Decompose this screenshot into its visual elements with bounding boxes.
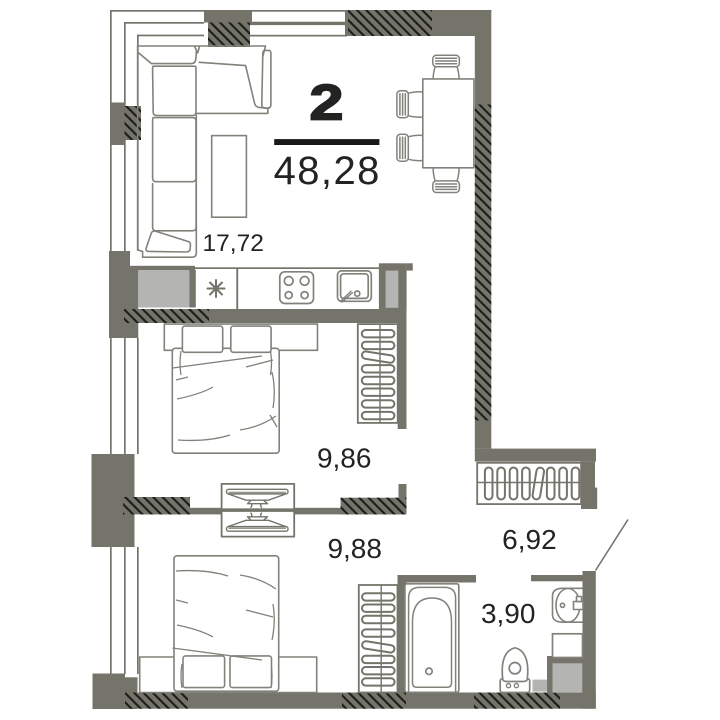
svg-text:2: 2 <box>310 75 344 131</box>
svg-text:9,88: 9,88 <box>327 533 382 564</box>
svg-text:3,90: 3,90 <box>481 598 536 629</box>
svg-text:6,92: 6,92 <box>502 524 557 555</box>
svg-text:17,72: 17,72 <box>203 230 264 257</box>
svg-text:9,86: 9,86 <box>317 442 372 473</box>
svg-text:48,28: 48,28 <box>274 149 381 193</box>
